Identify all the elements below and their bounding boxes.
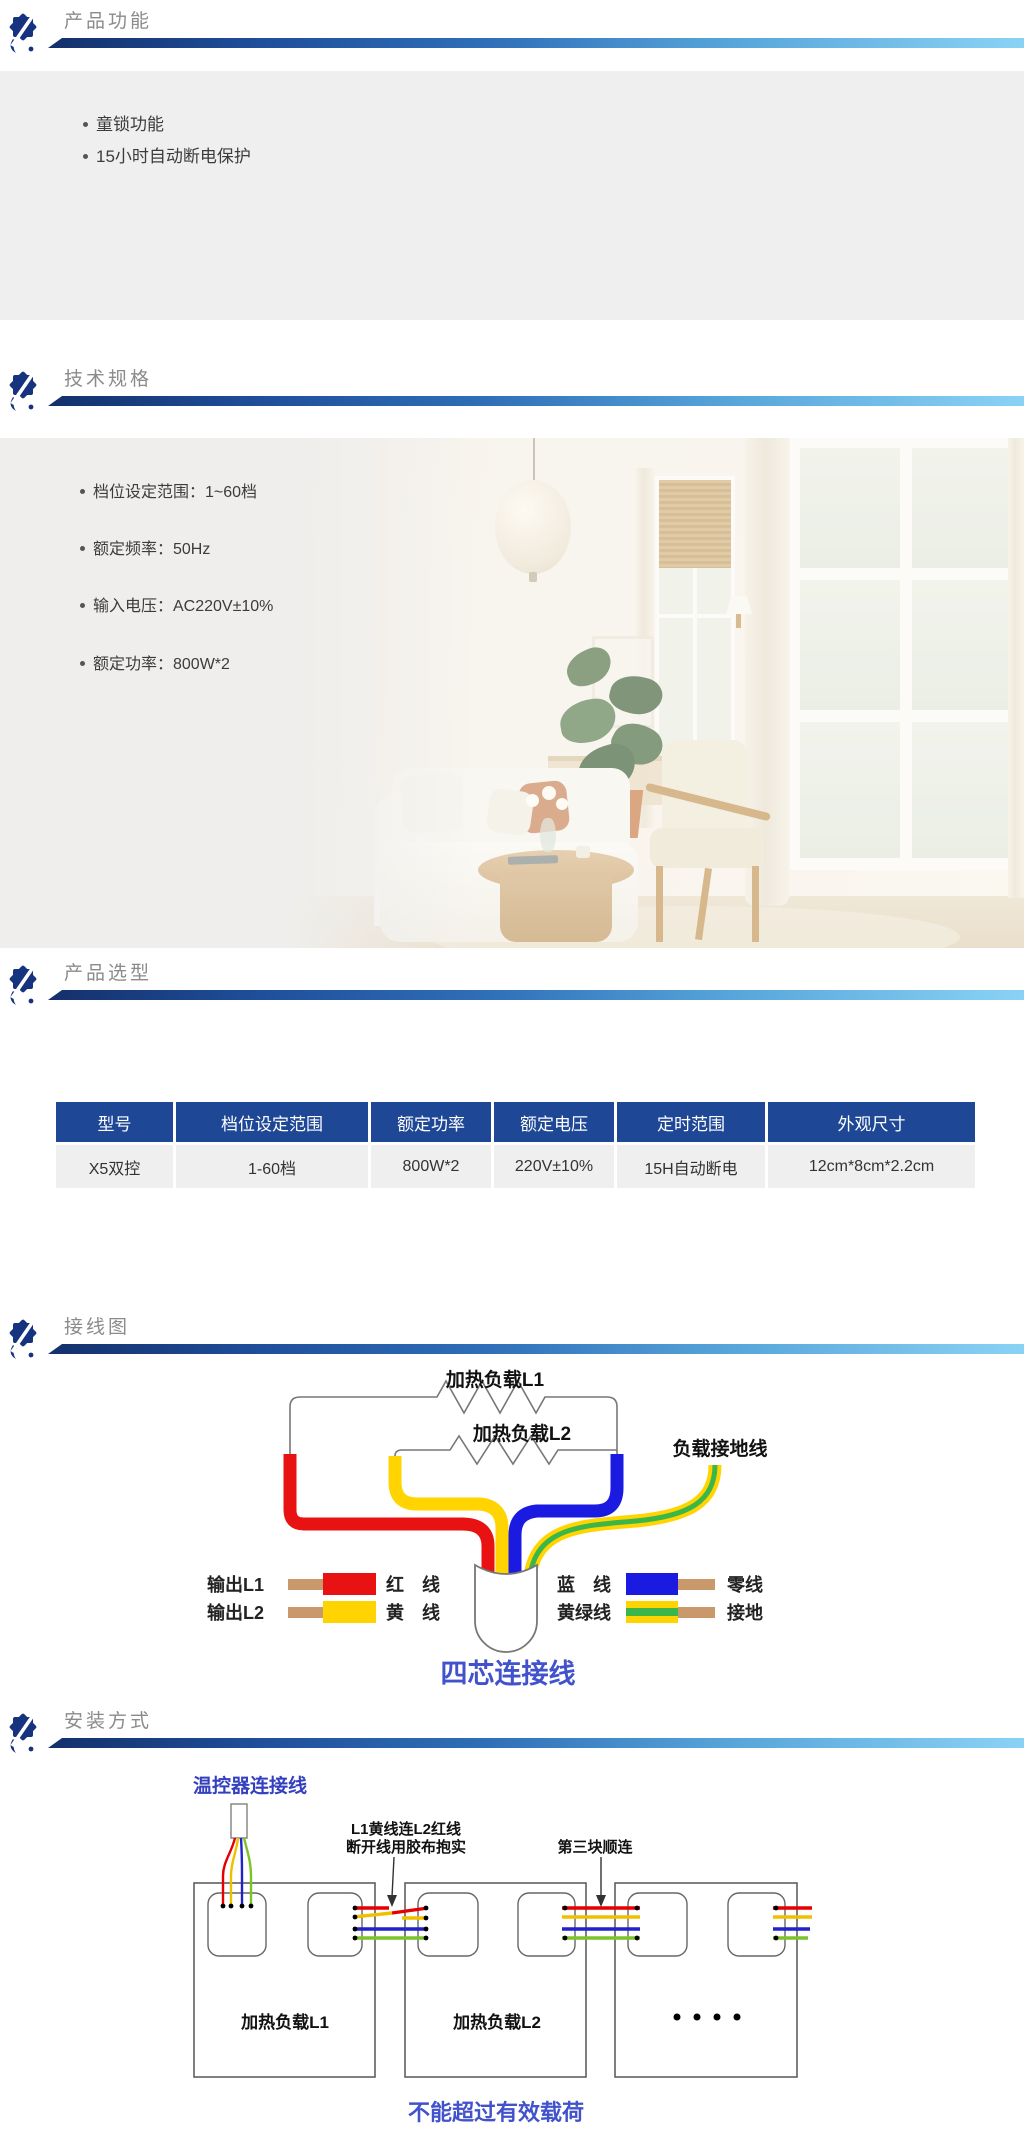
thermostat-connector bbox=[231, 1804, 247, 1838]
section-header-install: 安装方式 bbox=[0, 1706, 1024, 1758]
label-ground: 负载接地线 bbox=[672, 1437, 767, 1460]
terminal-box bbox=[518, 1893, 575, 1956]
warning-label: 不能超过有效载荷 bbox=[408, 2100, 584, 2125]
spec-bullet: 额定功率：800W*2 bbox=[80, 650, 500, 674]
table-cell: 220V±10% bbox=[494, 1145, 614, 1188]
bullet-dot bbox=[83, 154, 88, 159]
feature-bullet: 童锁功能 bbox=[83, 110, 164, 135]
legend-terminal bbox=[678, 1579, 715, 1590]
product-selection-table: 型号 档位设定范围 额定功率 额定电压 定时范围 外观尺寸 X5双控 1-60档… bbox=[56, 1102, 975, 1188]
terminal-box bbox=[628, 1893, 687, 1956]
panel1-label: 加热负载L1 bbox=[240, 2012, 329, 2032]
legend-yellow-label: 黄 线 bbox=[386, 1602, 440, 1623]
bullet-dot bbox=[80, 603, 85, 608]
gear-logo-icon bbox=[6, 370, 40, 412]
section-divider-bar bbox=[48, 990, 1024, 1000]
legend-blue-label: 蓝 线 bbox=[557, 1574, 611, 1595]
label-thermostat-cable: 温控器连接线 bbox=[193, 1774, 307, 1797]
panel2-label: 加热负载L2 bbox=[452, 2012, 541, 2032]
table-header-cell: 档位设定范围 bbox=[176, 1102, 368, 1142]
bullet-dot bbox=[83, 122, 88, 127]
gear-logo-icon bbox=[6, 1712, 40, 1754]
table-cell: 1-60档 bbox=[176, 1145, 368, 1188]
gear-logo-icon bbox=[6, 12, 40, 54]
label-load2: 加热负载L2 bbox=[472, 1422, 571, 1445]
legend-neutral-label: 零线 bbox=[726, 1574, 763, 1595]
wiring-diagram: 加热负载L1 加热负载L2 负载接地线 四芯连接线 输出L1 红 线 输出L2 … bbox=[0, 1350, 1024, 1695]
table-header-cell: 定时范围 bbox=[617, 1102, 765, 1142]
feature-bullet: 15小时自动断电保护 bbox=[83, 142, 251, 167]
legend-red-label: 红 线 bbox=[386, 1574, 440, 1595]
spec-bullet: 额定频率：50Hz bbox=[80, 535, 500, 559]
note2-arrow bbox=[596, 1857, 606, 1907]
legend-yellowgreen-label: 黄绿线 bbox=[557, 1602, 611, 1623]
legend-earth-label: 接地 bbox=[727, 1602, 763, 1623]
legend-swatch-yellowgreen bbox=[626, 1601, 678, 1623]
section-divider-bar bbox=[48, 38, 1024, 48]
section-header-features: 产品功能 bbox=[0, 6, 1024, 58]
section-divider-bar bbox=[48, 1738, 1024, 1748]
table-cell: 15H自动断电 bbox=[617, 1145, 765, 1188]
note1-arrow bbox=[387, 1857, 397, 1907]
legend-terminal bbox=[678, 1607, 715, 1618]
section-title: 技术规格 bbox=[64, 364, 152, 391]
spec-list: 档位设定范围：1~60档 额定频率：50Hz 输入电压：AC220V±10% 额… bbox=[0, 438, 420, 534]
section-header-specs: 技术规格 bbox=[0, 364, 1024, 416]
features-panel: 童锁功能 15小时自动断电保护 bbox=[0, 71, 1024, 320]
section-header-selection: 产品选型 bbox=[0, 958, 1024, 1010]
legend-swatch-red bbox=[323, 1573, 376, 1595]
legend-swatch-blue bbox=[626, 1573, 678, 1595]
bullet-dot bbox=[80, 489, 85, 494]
cable-sheath bbox=[475, 1565, 537, 1652]
terminal-box bbox=[418, 1893, 478, 1956]
section-title: 接线图 bbox=[64, 1312, 130, 1339]
bullet-dot bbox=[80, 546, 85, 551]
table-header-cell: 额定功率 bbox=[371, 1102, 491, 1142]
gear-logo-icon bbox=[6, 964, 40, 1006]
table-cell: 800W*2 bbox=[371, 1145, 491, 1188]
terminal-box bbox=[208, 1893, 266, 1956]
note2-label: 第三块顺连 bbox=[557, 1838, 633, 1856]
section-divider-bar bbox=[48, 396, 1024, 406]
bullet-dot bbox=[80, 661, 85, 666]
legend-terminal bbox=[288, 1607, 328, 1618]
table-header-cell: 型号 bbox=[56, 1102, 173, 1142]
label-cable: 四芯连接线 bbox=[441, 1658, 576, 1689]
legend-out2: 输出L2 bbox=[207, 1602, 264, 1623]
section-title: 产品功能 bbox=[64, 6, 152, 33]
spec-bullet: 档位设定范围：1~60档 bbox=[80, 478, 500, 502]
spec-bullet: 输入电压：AC220V±10% bbox=[80, 592, 500, 616]
terminal-box bbox=[728, 1893, 785, 1956]
legend-swatch-yellow bbox=[323, 1601, 376, 1623]
legend-terminal bbox=[288, 1579, 328, 1590]
terminal-box bbox=[308, 1893, 362, 1956]
label-load1: 加热负载L1 bbox=[445, 1368, 545, 1391]
note1-line2: 断开线用胶布抱实 bbox=[346, 1838, 466, 1856]
section-title: 产品选型 bbox=[64, 958, 152, 985]
table-header-cell: 额定电压 bbox=[494, 1102, 614, 1142]
section-title: 安装方式 bbox=[64, 1706, 152, 1733]
installation-diagram: 温控器连接线 L1黄线连L2红线 断开线用胶布抱实 第三块顺连 bbox=[0, 1756, 1024, 2150]
table-cell: X5双控 bbox=[56, 1145, 173, 1188]
legend-out1: 输出L1 bbox=[207, 1574, 264, 1595]
table-cell: 12cm*8cm*2.2cm bbox=[768, 1145, 975, 1188]
note1-line1: L1黄线连L2红线 bbox=[351, 1820, 461, 1838]
table-header-cell: 外观尺寸 bbox=[768, 1102, 975, 1142]
